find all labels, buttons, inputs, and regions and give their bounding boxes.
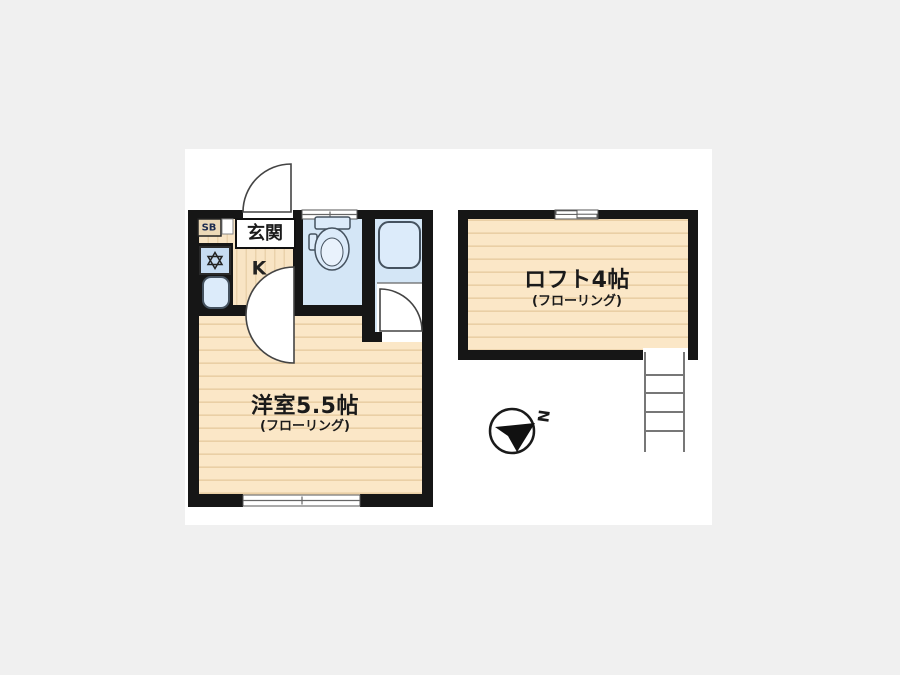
loft-window (555, 210, 598, 219)
kitchen-sink-icon (203, 277, 229, 308)
main-room-label: 洋室5.5帖 (251, 395, 359, 419)
floorplan-page: SB 玄関 K 洋室5.5帖 (フローリング) ロフト4帖 (フローリング) N (0, 0, 900, 675)
bathtub-icon (379, 222, 420, 268)
bathroom-threshold (382, 332, 422, 342)
small-cabinet (222, 219, 233, 234)
loft-label: ロフト4帖 (524, 269, 630, 293)
kitchen-label: K (252, 259, 267, 280)
main-room-window (243, 495, 360, 506)
shoe-box-label: SB (202, 223, 217, 234)
floorplan-drawing (0, 0, 900, 675)
stove-icon (200, 247, 230, 274)
entrance-label: 玄関 (247, 224, 283, 244)
loft-sublabel: (フローリング) (532, 295, 622, 309)
main-room-sublabel: (フローリング) (260, 420, 350, 434)
compass-north-icon (490, 409, 535, 453)
compass-north-label: N (534, 409, 552, 424)
